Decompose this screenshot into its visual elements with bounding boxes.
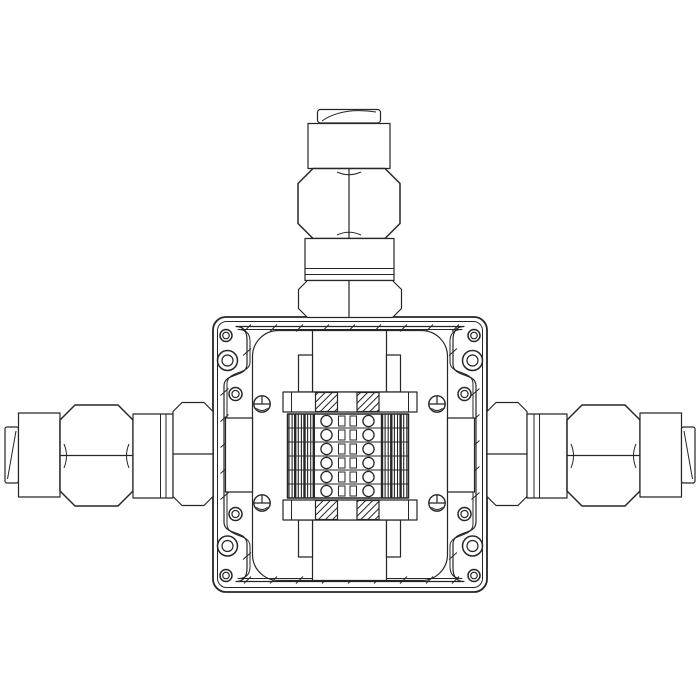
terminal-screw	[321, 443, 332, 454]
terminal-jumper-slot	[339, 458, 346, 468]
terminal-jumper-slot	[350, 430, 357, 440]
terminal-assembly	[283, 331, 417, 581]
terminal-screw	[363, 485, 374, 496]
bottom-duct-left-bar	[299, 520, 313, 557]
mounting-hole-outer	[458, 508, 471, 521]
terminal-screw	[363, 429, 374, 440]
terminal-top-plate	[283, 392, 417, 412]
right-cable-gland	[487, 403, 695, 507]
gland-body-cylinder	[640, 413, 682, 497]
hatched-clamp-block	[316, 393, 338, 412]
bottom-cable-duct	[313, 520, 387, 581]
top-duct-right-bar	[387, 355, 401, 392]
mounting-hole-outer	[458, 388, 471, 401]
terminal-jumper-slot	[350, 472, 357, 482]
mounting-hole-outer	[220, 570, 232, 582]
top-duct-left-bar	[299, 355, 313, 392]
gland-neck	[527, 414, 567, 498]
top-cable-duct	[313, 331, 387, 393]
left-cable-gland	[5, 403, 213, 507]
gland-hex-nut-small	[487, 403, 527, 506]
gland-hex-nut-large	[60, 405, 133, 506]
hatched-clamp-block	[316, 501, 338, 520]
gland-neck	[133, 414, 173, 498]
gland-hex-nut-large	[567, 405, 640, 506]
terminal-screw	[363, 443, 374, 454]
left-wall-entry-pad	[226, 418, 253, 492]
gland-hex-nut-large	[298, 169, 400, 239]
mounting-hole-outer	[468, 330, 480, 342]
hatched-clamp-block	[357, 501, 379, 520]
terminal-jumper-slot	[339, 486, 346, 496]
terminal-screw	[321, 485, 332, 496]
terminal-jumper-slot	[350, 416, 357, 426]
gland-neck	[305, 239, 394, 281]
seam-tick	[244, 325, 251, 332]
mounting-hole-outer	[218, 351, 238, 371]
terminal-jumper-slot	[339, 430, 346, 440]
gland-body-cylinder	[308, 124, 390, 169]
mounting-hole-outer	[463, 351, 483, 371]
top-cable-gland	[298, 110, 402, 318]
gland-body-cylinder	[19, 413, 61, 497]
terminal-jumper-slot	[350, 444, 357, 454]
mounting-hole-outer	[463, 536, 483, 556]
right-wall-entry-pad	[448, 418, 475, 492]
terminal-jumper-slot	[350, 486, 357, 496]
gland-hex-nut-small	[299, 281, 402, 318]
terminal-jumper-slot	[339, 444, 346, 454]
terminal-screw	[321, 457, 332, 468]
terminal-jumper-slot	[339, 472, 346, 482]
hatched-clamp-block	[357, 393, 379, 412]
mounting-hole-outer	[468, 570, 480, 582]
terminal-jumper-slot	[339, 416, 346, 426]
terminal-bottom-plate	[283, 500, 417, 520]
mounting-hole-outer	[229, 508, 242, 521]
terminal-screw	[321, 415, 332, 426]
bottom-duct-right-bar	[387, 520, 401, 557]
mounting-hole-outer	[218, 536, 238, 556]
terminal-screw	[321, 471, 332, 482]
terminal-screw	[321, 429, 332, 440]
terminal-screw	[363, 471, 374, 482]
gland-hex-nut-small	[173, 403, 213, 506]
mounting-hole-outer	[229, 388, 242, 401]
terminal-screw	[363, 457, 374, 468]
terminal-jumper-slot	[350, 458, 357, 468]
junction-box-technical-drawing	[0, 0, 700, 700]
terminal-screw	[363, 415, 374, 426]
mounting-hole-outer	[220, 330, 232, 342]
